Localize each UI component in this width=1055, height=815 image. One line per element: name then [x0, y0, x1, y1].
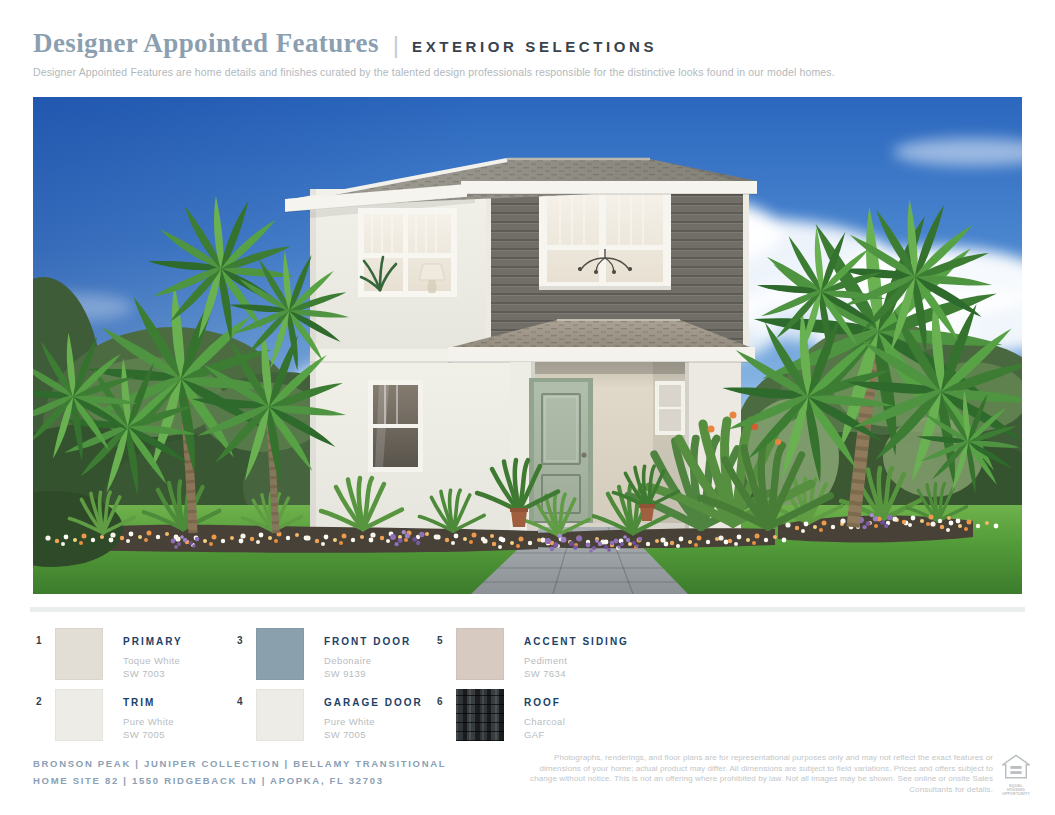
community-line: BRONSON PEAK | JUNIPER COLLECTION | BELL… [33, 755, 446, 772]
equal-housing-text: EQUAL HOUSING OPPORTUNITY [1001, 784, 1031, 797]
category-label: EXTERIOR SELECTIONS [412, 38, 657, 55]
selection-item-garage-door: 4 GARAGE DOOR Pure WhiteSW 7005 [237, 689, 437, 741]
color-swatch [456, 628, 504, 680]
first-floor-window [368, 380, 423, 472]
selection-color: PedimentSW 7634 [524, 654, 629, 680]
header: Designer Appointed Features | EXTERIOR S… [33, 28, 1028, 78]
equal-housing-house-icon [1002, 754, 1030, 779]
door-handle [581, 452, 586, 457]
header-title-row: Designer Appointed Features | EXTERIOR S… [33, 28, 1028, 59]
selection-color: Toque WhiteSW 7003 [123, 654, 183, 680]
selection-color: DebonaireSW 9139 [324, 654, 411, 680]
selection-number: 3 [237, 628, 256, 680]
address-line: HOME SITE 82 | 1550 RIDGEBACK LN | APOPK… [33, 772, 446, 789]
selection-label: ACCENT SIDING [524, 636, 629, 647]
color-swatch [256, 628, 304, 680]
selection-number: 1 [36, 628, 55, 680]
color-swatch [55, 689, 103, 741]
selection-number: 5 [437, 628, 456, 680]
porch [510, 362, 689, 541]
selection-color: Pure WhiteSW 7005 [324, 715, 423, 741]
legal-disclaimer: Photographs, renderings, and floor plans… [520, 753, 993, 795]
upper-right-window [539, 186, 671, 290]
selection-number: 2 [36, 689, 55, 741]
header-description: Designer Appointed Features are home det… [33, 66, 1028, 78]
selection-label: TRIM [123, 697, 174, 708]
selection-number: 4 [237, 689, 256, 741]
section-divider [30, 607, 1025, 612]
selection-label: ROOF [524, 697, 565, 708]
selection-item-front-door: 3 FRONT DOOR DebonaireSW 9139 [237, 628, 437, 680]
home-rendering-scene [33, 97, 1022, 594]
color-swatch [256, 689, 304, 741]
selection-label: FRONT DOOR [324, 636, 411, 647]
selection-color: CharcoalGAF [524, 715, 565, 741]
selection-item-trim: 2 TRIM Pure WhiteSW 7005 [36, 689, 237, 741]
home-rendering-image [33, 97, 1022, 594]
community-info: BRONSON PEAK | JUNIPER COLLECTION | BELL… [33, 755, 446, 789]
selection-color: Pure WhiteSW 7005 [123, 715, 174, 741]
equal-housing-logo: EQUAL HOUSING OPPORTUNITY [1001, 754, 1031, 797]
selection-number: 6 [437, 689, 456, 741]
upper-left-window [358, 208, 457, 297]
selection-item-primary: 1 PRIMARY Toque WhiteSW 7003 [36, 628, 237, 680]
designer-features-flyer: Designer Appointed Features | EXTERIOR S… [0, 0, 1055, 815]
selection-label: GARAGE DOOR [324, 697, 423, 708]
title-separator: | [393, 31, 399, 59]
porch-window [655, 381, 685, 435]
color-swatch [55, 628, 103, 680]
color-swatch [456, 689, 504, 741]
page-title: Designer Appointed Features [33, 28, 379, 59]
selection-item-accent-siding: 5 ACCENT SIDING PedimentSW 7634 [437, 628, 737, 680]
selection-item-roof: 6 ROOF CharcoalGAF [437, 689, 737, 741]
exterior-selections-list: 1 PRIMARY Toque WhiteSW 7003 2 TRIM Pure… [36, 628, 737, 741]
selection-label: PRIMARY [123, 636, 183, 647]
